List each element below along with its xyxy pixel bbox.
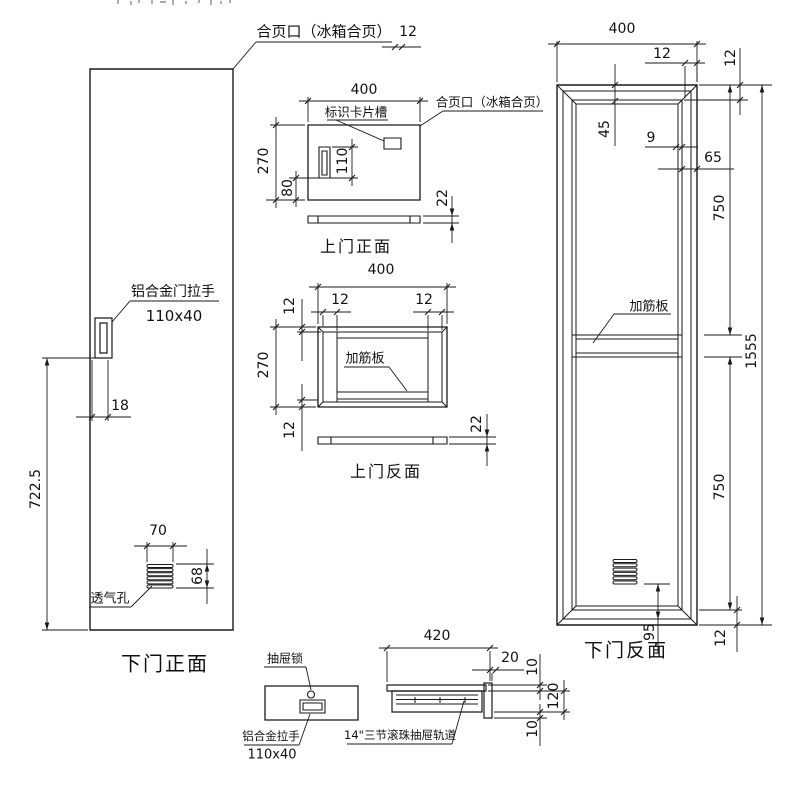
dim-label-uf-22: 22 <box>435 189 451 207</box>
hinge-top-label: 合页口（冰箱合页） <box>256 21 391 42</box>
dim-label-rp-12-bottom: 12 <box>713 629 729 647</box>
dim-label-ub-12-left: 12 <box>331 292 349 308</box>
vent-slots-right-panel <box>613 560 637 585</box>
dim-label-rail-20: 20 <box>501 650 519 666</box>
dim-label-ub-12-top: 12 <box>282 297 298 315</box>
rib-upper-leader <box>344 367 407 391</box>
dim-label-uf-110: 110 <box>335 148 351 175</box>
dim-label-vent-68: 68 <box>190 567 206 585</box>
dim-label-rp-750-bottom: 750 <box>712 474 728 501</box>
rib-lower-label: 加筋板 <box>629 296 668 315</box>
drawer-handle-size-label: 110x40 <box>247 748 296 763</box>
upper-front-strip <box>308 216 420 223</box>
door-handle-shape <box>95 318 112 358</box>
lower-door-back-view <box>557 85 697 625</box>
rib-upper-label: 加筋板 <box>345 348 384 367</box>
dim-label-rp-400: 400 <box>609 21 636 37</box>
upper-door-front-view <box>308 125 420 223</box>
dim-label-rp-95: 95 <box>642 623 658 641</box>
drawer-lock-shape <box>308 691 315 698</box>
rail-end-cap <box>484 683 492 718</box>
card-slot-leader <box>327 120 388 141</box>
hinge-mid-label: 合页口（冰箱合页） <box>436 92 549 111</box>
upper-back-strip <box>318 437 447 444</box>
card-slot-shape <box>384 138 401 149</box>
cropped-text-fragments <box>118 0 230 5</box>
dim-label-ub-22: 22 <box>469 415 485 433</box>
dim-label-rail-420: 420 <box>424 628 451 644</box>
dim-label-vent-70: 70 <box>149 523 167 539</box>
drawer-rail-view <box>387 683 492 718</box>
vent-slots-left-door <box>147 565 173 589</box>
dim-label-door-722-5: 722.5 <box>28 469 44 509</box>
drawer-rail-label: 14"三节滚珠抽屉轨道 <box>344 727 456 743</box>
drawer-lock-label: 抽屉锁 <box>267 650 303 667</box>
dim-label-rp-1555: 1555 <box>744 333 760 369</box>
upper-handle-shape <box>319 147 330 178</box>
dim-label-hinge-12: 12 <box>399 24 417 40</box>
drawer-front-view <box>265 686 358 720</box>
dim-label-uf-270: 270 <box>256 148 272 175</box>
dim-label-rp-750-top: 750 <box>712 195 728 222</box>
drawer-handle-shape <box>300 700 325 713</box>
rib-plate-band <box>572 335 682 357</box>
vent-label: 透气孔 <box>90 588 129 607</box>
dim-label-rp-45: 45 <box>597 120 613 138</box>
hinge-mid-leader <box>420 111 543 126</box>
hinge-top-leader <box>233 42 392 69</box>
door-handle-label: 铝合金门拉手 <box>131 281 215 301</box>
rib-plate-shape <box>337 392 428 399</box>
card-slot-label: 标识卡片槽 <box>325 102 388 121</box>
dim-label-ub-400: 400 <box>368 262 395 278</box>
dim-label-uf-80: 80 <box>280 179 296 197</box>
dim-label-rp-9: 9 <box>647 130 656 146</box>
dim-label-rail-120: 120 <box>546 683 562 710</box>
dim-label-uf-400: 400 <box>351 82 378 98</box>
dim-label-rp-12-right: 12 <box>723 49 739 67</box>
dim-label-door-18: 18 <box>111 398 129 414</box>
drawing-linework <box>0 0 790 785</box>
dim-label-rail-10-top: 10 <box>525 658 541 676</box>
upper-door-back-view <box>318 327 447 444</box>
dim-label-rp-12-top: 12 <box>653 46 671 62</box>
caption-upper-door-back: 上门反面 <box>350 458 422 482</box>
dim-label-ub-12-bottom: 12 <box>282 421 298 439</box>
dim-label-ub-270: 270 <box>256 352 272 379</box>
dim-label-rp-65: 65 <box>704 150 722 166</box>
door-handle-size-label: 110x40 <box>146 307 203 325</box>
cad-drawing-cabinet-doors: 合页口（冰箱合页） 合页口（冰箱合页） 标识卡片槽 铝合金门拉手 110x40 … <box>0 0 790 785</box>
dim-label-rail-10-bottom: 10 <box>525 720 541 738</box>
dim-label-ub-12-right: 12 <box>415 292 433 308</box>
caption-lower-door-front: 下门正面 <box>121 648 209 677</box>
caption-upper-door-front: 上门正面 <box>320 233 392 257</box>
drawer-handle-label: 铝合金拉手 <box>242 728 300 744</box>
